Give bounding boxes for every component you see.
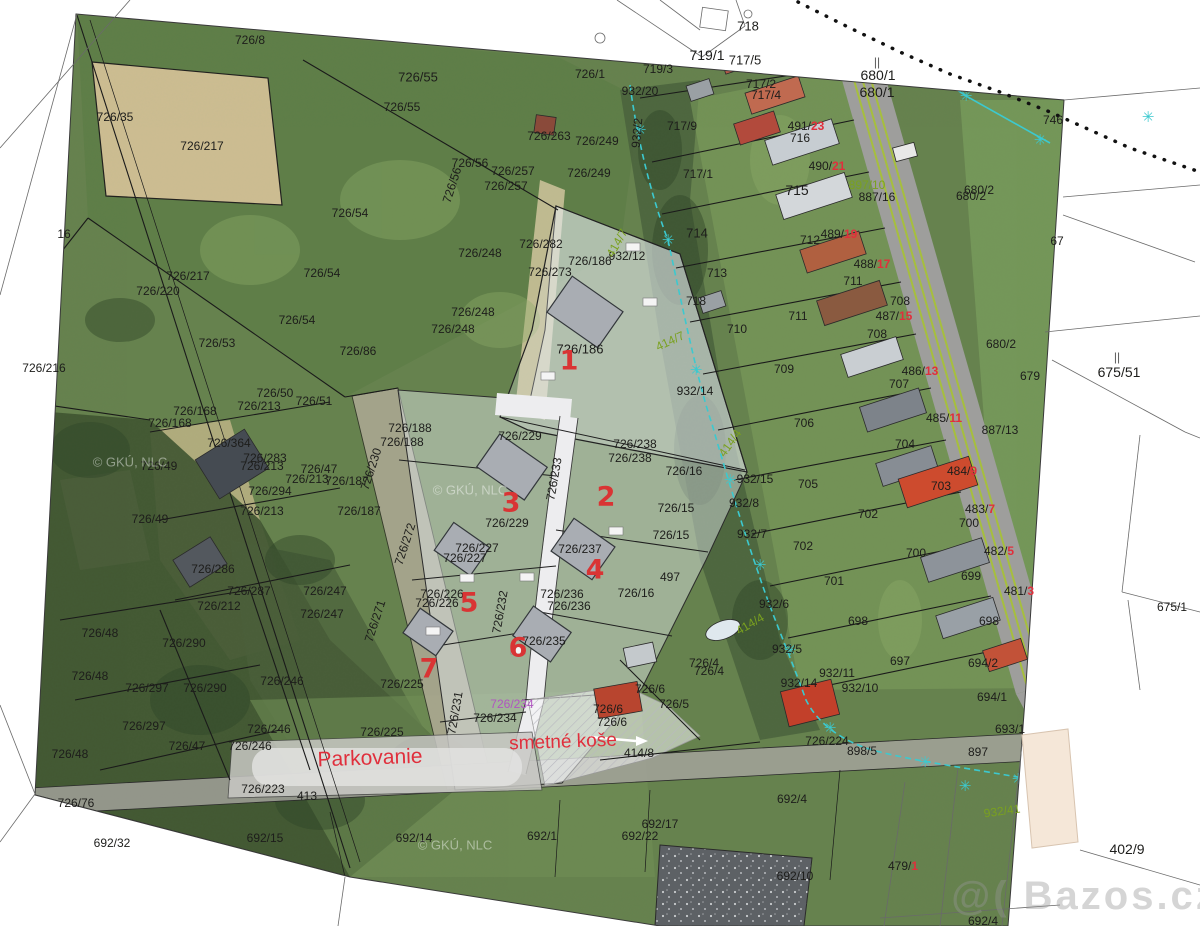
svg-text:✳: ✳: [959, 777, 972, 795]
svg-text:✳: ✳: [754, 556, 767, 574]
svg-text:✳: ✳: [784, 641, 797, 659]
svg-text:✳: ✳: [634, 121, 647, 139]
map-canvas: ✳✳✳ ✳✳✳ ✳✳✳ ✳ ✳✳✳: [0, 0, 1200, 926]
svg-text:✳: ✳: [1034, 131, 1047, 149]
utility-star: ✳: [1142, 108, 1155, 126]
cadastral-map-screenshot: ✳✳✳ ✳✳✳ ✳✳✳ ✳ ✳✳✳: [0, 0, 1200, 926]
svg-text:✳: ✳: [690, 361, 703, 379]
svg-text:✳: ✳: [662, 231, 675, 249]
svg-text:✳: ✳: [724, 471, 737, 489]
svg-text:✳: ✳: [919, 753, 932, 771]
beige-map-sheet: [1022, 729, 1078, 848]
warehouse-roof: [655, 845, 812, 926]
svg-text:✳: ✳: [824, 719, 837, 737]
